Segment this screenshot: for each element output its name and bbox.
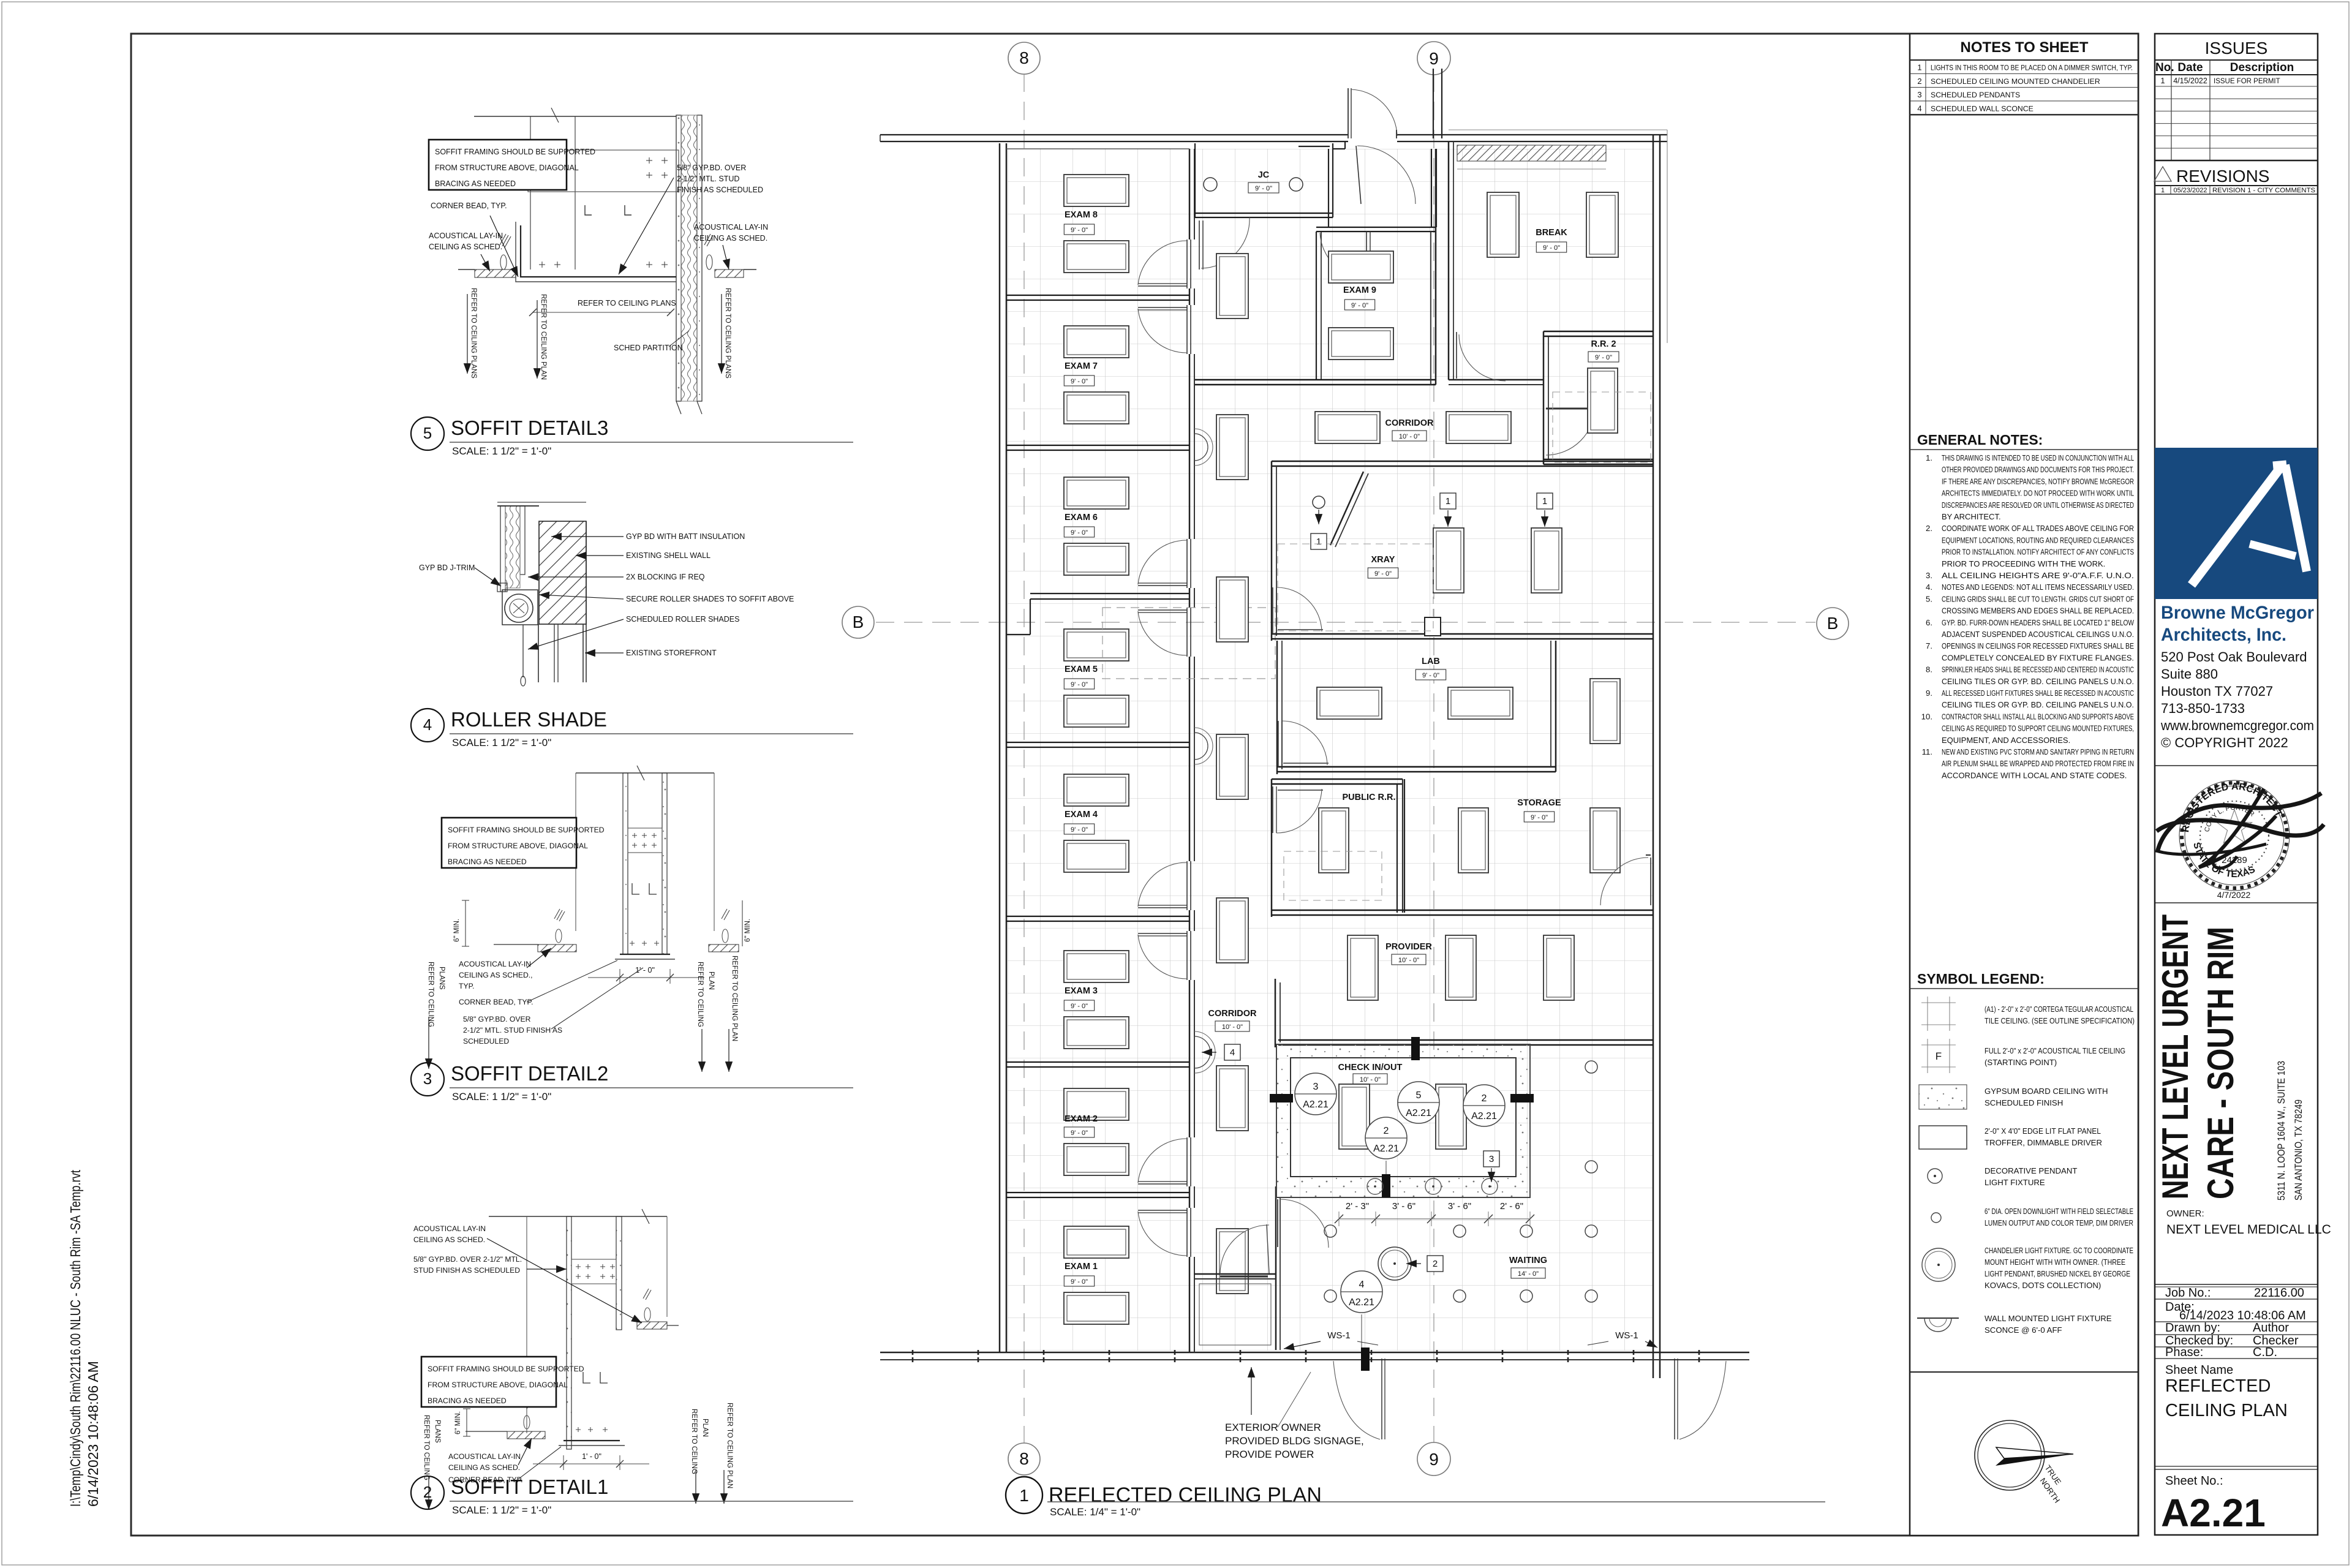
svg-text:CEILING AS REQUIRED TO SUPPORT: CEILING AS REQUIRED TO SUPPORT CEILING M… <box>1942 724 2134 733</box>
svg-text:PROVIDER: PROVIDER <box>1385 942 1432 952</box>
svg-text:3.: 3. <box>1926 571 1932 580</box>
svg-text:9' - 0": 9' - 0" <box>1255 185 1272 192</box>
svg-text:NOTES AND LEGENDS: NOT ALL ITE: NOTES AND LEGENDS: NOT ALL ITEMS NECESSA… <box>1942 582 2134 592</box>
svg-text:ISSUE FOR PERMIT: ISSUE FOR PERMIT <box>2214 78 2280 85</box>
svg-text:(A1) - 2'-0" x 2'-0" CORTEGA T: (A1) - 2'-0" x 2'-0" CORTEGA TEGULAR ACO… <box>1985 1005 2133 1014</box>
svg-text:NEXT LEVEL URGENT: NEXT LEVEL URGENT <box>2155 914 2196 1199</box>
svg-text:1: 1 <box>1445 496 1450 507</box>
svg-text:05/23/2022: 05/23/2022 <box>2173 187 2207 194</box>
svg-text:PLAN: PLAN <box>701 1419 709 1437</box>
svg-text:ACOUSTICAL LAY-IN: ACOUSTICAL LAY-IN <box>459 960 531 968</box>
svg-text:PRIOR TO INSTALLATION. NOTIFY: PRIOR TO INSTALLATION. NOTIFY ARCHITECT … <box>1942 548 2134 557</box>
svg-text:Architects, Inc.: Architects, Inc. <box>2161 625 2286 645</box>
svg-text:GYP. BD. FURR-DOWN HEADERS SHA: GYP. BD. FURR-DOWN HEADERS SHALL BE LOCA… <box>1942 618 2135 627</box>
svg-text:10' - 0": 10' - 0" <box>1360 1076 1381 1084</box>
svg-text:A2.21: A2.21 <box>1303 1099 1329 1110</box>
svg-text:9' - 0": 9' - 0" <box>1071 1278 1088 1286</box>
svg-text:Description: Description <box>2230 61 2294 74</box>
svg-text:EXAM 5: EXAM 5 <box>1065 665 1098 674</box>
svg-text:9' - 0": 9' - 0" <box>1071 378 1088 385</box>
svg-text:DISCREPANCIES ARE RESOLVED OR: DISCREPANCIES ARE RESOLVED OR UNTIL OTHE… <box>1942 500 2134 510</box>
svg-text:FROM STRUCTURE ABOVE, DIAGONAL: FROM STRUCTURE ABOVE, DIAGONAL <box>428 1381 568 1389</box>
svg-text:GYPSUM BOARD CEILING WITH: GYPSUM BOARD CEILING WITH <box>1985 1087 2108 1096</box>
svg-text:9' - 0": 9' - 0" <box>1531 814 1548 821</box>
svg-text:THIS DRAWING IS INTENDED TO BE: THIS DRAWING IS INTENDED TO BE USED IN C… <box>1942 453 2134 462</box>
svg-text:FROM STRUCTURE ABOVE, DIAGONAL: FROM STRUCTURE ABOVE, DIAGONAL <box>448 842 588 850</box>
svg-text:WS-1: WS-1 <box>1615 1330 1638 1341</box>
svg-text:CORRIDOR: CORRIDOR <box>1385 418 1434 428</box>
svg-text:6/14/2023 10:48:06 AM: 6/14/2023 10:48:06 AM <box>85 1361 101 1507</box>
svg-text:CEILING AS SCHED.: CEILING AS SCHED. <box>413 1235 485 1244</box>
svg-text:8: 8 <box>1019 1449 1029 1468</box>
svg-text:B: B <box>853 612 864 631</box>
svg-text:EXAM 2: EXAM 2 <box>1065 1114 1098 1124</box>
svg-text:REFER TO CEILING: REFER TO CEILING <box>690 1409 698 1474</box>
svg-text:NEXT LEVEL MEDICAL LLC: NEXT LEVEL MEDICAL LLC <box>2166 1223 2331 1237</box>
svg-text:EXISTING STOREFRONT: EXISTING STOREFRONT <box>626 649 717 657</box>
svg-text:9' - 0": 9' - 0" <box>1422 672 1439 679</box>
svg-text:1: 1 <box>1917 63 1921 72</box>
svg-text:1' - 0": 1' - 0" <box>635 966 655 974</box>
svg-text:EQUIPMENT, AND ACCESSORIES.: EQUIPMENT, AND ACCESSORIES. <box>1942 736 2070 745</box>
svg-text:SOFFIT FRAMING SHOULD BE SUPPO: SOFFIT FRAMING SHOULD BE SUPPORTED <box>435 148 595 156</box>
svg-text:XRAY: XRAY <box>1371 555 1395 565</box>
svg-text:PROVIDED BLDG SIGNAGE,: PROVIDED BLDG SIGNAGE, <box>1225 1435 1364 1447</box>
svg-text:EXAM 1: EXAM 1 <box>1065 1262 1098 1272</box>
svg-text:REVISION 1 - CITY COMMENTS: REVISION 1 - CITY COMMENTS <box>2212 187 2315 194</box>
svg-text:2' - 3": 2' - 3" <box>1346 1201 1369 1212</box>
svg-text:SOFFIT FRAMING SHOULD BE SUPPO: SOFFIT FRAMING SHOULD BE SUPPORTED <box>448 826 605 834</box>
svg-text:2: 2 <box>1482 1093 1487 1104</box>
svg-text:R.R. 2: R.R. 2 <box>1591 339 1616 349</box>
svg-text:2.: 2. <box>1926 524 1932 533</box>
svg-text:SOFFIT DETAIL2: SOFFIT DETAIL2 <box>451 1062 608 1085</box>
svg-text:9' - 0": 9' - 0" <box>1351 302 1368 309</box>
svg-text:REFER TO CEILING PLAN: REFER TO CEILING PLAN <box>726 1403 733 1488</box>
svg-text:6" MIN.: 6" MIN. <box>454 1411 462 1434</box>
svg-text:4/15/2022: 4/15/2022 <box>2173 77 2207 85</box>
svg-text:IF THERE ARE ANY DISCREPANCIES: IF THERE ARE ANY DISCREPANCIES, NOTIFY B… <box>1942 477 2134 486</box>
svg-text:AIR PLENUM SHALL BE WRAPPED AN: AIR PLENUM SHALL BE WRAPPED AND PROTECTE… <box>1942 759 2134 768</box>
svg-text:MOUNT HEIGHT WITH WITH OWNER.: MOUNT HEIGHT WITH WITH OWNER. (THREE <box>1985 1257 2125 1267</box>
svg-text:PUBLIC R.R.: PUBLIC R.R. <box>1343 793 1396 802</box>
svg-text:WALL MOUNTED LIGHT FIXTURE: WALL MOUNTED LIGHT FIXTURE <box>1985 1314 2112 1323</box>
svg-text:SCHED PARTITION: SCHED PARTITION <box>614 344 683 352</box>
svg-text:Job No.:: Job No.: <box>2165 1286 2211 1300</box>
svg-text:(STARTING POINT): (STARTING POINT) <box>1985 1058 2057 1067</box>
svg-text:Sheet Name: Sheet Name <box>2165 1363 2233 1377</box>
svg-text:CORNER BEAD, TYP.: CORNER BEAD, TYP. <box>459 998 533 1006</box>
svg-text:GENERAL NOTES:: GENERAL NOTES: <box>1917 432 2043 448</box>
svg-text:9' - 0": 9' - 0" <box>1071 681 1088 688</box>
svg-text:ALL RECESSED LIGHT FIXTURES SH: ALL RECESSED LIGHT FIXTURES SHALL BE REC… <box>1942 688 2134 698</box>
svg-text:3' - 6": 3' - 6" <box>1392 1201 1415 1212</box>
svg-text:STORAGE: STORAGE <box>1517 798 1561 808</box>
svg-text:14' - 0": 14' - 0" <box>1518 1270 1539 1278</box>
svg-text:EXAM 8: EXAM 8 <box>1065 210 1098 220</box>
svg-text:ARCHITECTS IMMEDIATELY. DO NOT: ARCHITECTS IMMEDIATELY. DO NOT PROCEED W… <box>1942 489 2134 498</box>
svg-text:TILE CEILING. (SEE OUTLINE SPE: TILE CEILING. (SEE OUTLINE SPECIFICATION… <box>1985 1016 2135 1025</box>
svg-text:SCHEDULED WALL SCONCE: SCHEDULED WALL SCONCE <box>1931 104 2034 113</box>
svg-text:8: 8 <box>1019 48 1029 67</box>
svg-text:COORDINATE WORK OF ALL TRADES: COORDINATE WORK OF ALL TRADES ABOVE CEIL… <box>1942 524 2134 533</box>
svg-text:REFER TO CEILING: REFER TO CEILING <box>696 962 704 1027</box>
svg-text:A2.21: A2.21 <box>1471 1111 1497 1121</box>
svg-text:SCALE: 1 1/2" = 1'-0": SCALE: 1 1/2" = 1'-0" <box>452 445 551 457</box>
svg-text:EXAM 9: EXAM 9 <box>1343 285 1376 295</box>
svg-text:ADJACENT SUSPENDED ACOUSTICAL: ADJACENT SUSPENDED ACOUSTICAL CEILINGS U… <box>1942 630 2134 639</box>
svg-text:4/7/2022: 4/7/2022 <box>2217 890 2251 900</box>
svg-text:2X BLOCKING IF REQ: 2X BLOCKING IF REQ <box>626 573 705 581</box>
svg-text:9' - 0": 9' - 0" <box>1595 354 1612 361</box>
svg-text:REFER TO CEILING PLANS: REFER TO CEILING PLANS <box>724 288 731 379</box>
svg-text:WS-1: WS-1 <box>1327 1330 1351 1341</box>
svg-text:CEILING GRIDS SHALL BE CUT TO: CEILING GRIDS SHALL BE CUT TO LENGTH. GR… <box>1942 594 2134 603</box>
svg-text:NEW AND EXISTING PVC STORM AND: NEW AND EXISTING PVC STORM AND SANITARY … <box>1942 747 2134 756</box>
svg-text:OTHER PROVIDED DRAWINGS AND DO: OTHER PROVIDED DRAWINGS AND DOCUMENTS FO… <box>1942 465 2134 474</box>
svg-text:LIGHTS IN THIS ROOM TO BE PLAC: LIGHTS IN THIS ROOM TO BE PLACED ON A DI… <box>1931 64 2133 72</box>
svg-text:REFLECTED: REFLECTED <box>2165 1376 2271 1396</box>
svg-text:LIGHT PENDANT, BRUSHED NICKEL: LIGHT PENDANT, BRUSHED NICKEL BY GEORGE <box>1985 1269 2130 1278</box>
svg-text:A2.21: A2.21 <box>2161 1491 2266 1535</box>
svg-text:5/8" GYP.BD. OVER 2-1/2" MTL.: 5/8" GYP.BD. OVER 2-1/2" MTL. <box>413 1255 522 1264</box>
svg-text:5/8" GYP.BD. OVER: 5/8" GYP.BD. OVER <box>677 164 746 172</box>
svg-text:NOTES TO SHEET: NOTES TO SHEET <box>1961 39 2089 56</box>
svg-text:OWNER:: OWNER: <box>2166 1208 2204 1219</box>
svg-text:1: 1 <box>1316 537 1321 547</box>
svg-text:SCALE: 1 1/2" = 1'-0": SCALE: 1 1/2" = 1'-0" <box>452 1091 551 1102</box>
svg-text:REFER TO CEILING: REFER TO CEILING <box>423 1415 430 1480</box>
svg-text:F: F <box>1936 1050 1942 1062</box>
svg-text:9' - 0": 9' - 0" <box>1071 826 1088 834</box>
svg-text:1.: 1. <box>1926 453 1932 462</box>
svg-text:9' - 0": 9' - 0" <box>1543 244 1560 252</box>
svg-text:9' - 0": 9' - 0" <box>1071 227 1088 234</box>
svg-text:6/14/2023 10:48:06 AM: 6/14/2023 10:48:06 AM <box>2179 1309 2306 1322</box>
svg-text:SOFFIT DETAIL1: SOFFIT DETAIL1 <box>451 1476 608 1498</box>
svg-text:2: 2 <box>1917 77 1921 86</box>
svg-text:EXAM 3: EXAM 3 <box>1065 986 1098 996</box>
svg-text:© COPYRIGHT 2022: © COPYRIGHT 2022 <box>2161 735 2288 750</box>
svg-text:I:\Temp\Cindy\South Rim\22116.: I:\Temp\Cindy\South Rim\22116.00 NLUC - … <box>67 1170 83 1507</box>
svg-text:1' - 0": 1' - 0" <box>582 1452 601 1461</box>
svg-text:CHECK IN/OUT: CHECK IN/OUT <box>1338 1063 1403 1072</box>
svg-text:SCHEDULED: SCHEDULED <box>463 1037 509 1046</box>
svg-text:PLAN: PLAN <box>707 971 715 990</box>
svg-text:PROVIDE POWER: PROVIDE POWER <box>1225 1449 1314 1460</box>
svg-text:SCHEDULED ROLLER SHADES: SCHEDULED ROLLER SHADES <box>626 615 739 624</box>
svg-text:EQUIPMENT LOCATIONS, ROUTING A: EQUIPMENT LOCATIONS, ROUTING AND REQUIRE… <box>1942 535 2134 545</box>
svg-text:10' - 0": 10' - 0" <box>1398 957 1419 964</box>
svg-text:ROLLER SHADE: ROLLER SHADE <box>451 708 607 731</box>
svg-text:22116.00: 22116.00 <box>2254 1286 2304 1300</box>
svg-text:8.: 8. <box>1926 665 1932 674</box>
svg-text:CEILING TILES OR GYP. BD. CEIL: CEILING TILES OR GYP. BD. CEILING PANELS… <box>1942 677 2134 686</box>
svg-text:EXAM 4: EXAM 4 <box>1065 810 1098 820</box>
svg-text:CARE - SOUTH RIM: CARE - SOUTH RIM <box>2200 927 2241 1199</box>
svg-text:BRACING AS NEEDED: BRACING AS NEEDED <box>428 1396 507 1405</box>
svg-text:OPENINGS IN CEILINGS FOR RECES: OPENINGS IN CEILINGS FOR RECESSED FIXTUR… <box>1942 641 2134 650</box>
svg-text:9' - 0": 9' - 0" <box>1374 570 1392 578</box>
svg-text:SAN ANTONIO, TX 78249: SAN ANTONIO, TX 78249 <box>2293 1099 2304 1200</box>
svg-text:REFLECTED CEILING PLAN: REFLECTED CEILING PLAN <box>1049 1483 1322 1507</box>
svg-text:SOFFIT FRAMING SHOULD BE SUPPO: SOFFIT FRAMING SHOULD BE SUPPORTED <box>428 1365 584 1373</box>
svg-text:A2.21: A2.21 <box>1373 1144 1399 1154</box>
svg-text:2: 2 <box>423 1483 432 1501</box>
svg-text:2'-0" X 4'0" EDGE LIT FLAT PAN: 2'-0" X 4'0" EDGE LIT FLAT PANEL <box>1985 1126 2101 1136</box>
svg-text:SCALE: 1 1/2" = 1'-0": SCALE: 1 1/2" = 1'-0" <box>452 1504 551 1516</box>
svg-text:CEILING AS SCHED.: CEILING AS SCHED. <box>429 243 502 251</box>
svg-text:Phase:: Phase: <box>2165 1346 2203 1359</box>
svg-text:CEILING AS SCHED.,: CEILING AS SCHED., <box>459 971 533 979</box>
svg-text:9.: 9. <box>1926 688 1932 698</box>
svg-text:9' - 0": 9' - 0" <box>1071 1129 1088 1137</box>
svg-text:WAITING: WAITING <box>1509 1256 1547 1265</box>
svg-text:CEILING PLAN: CEILING PLAN <box>2165 1401 2288 1420</box>
svg-text:10' - 0": 10' - 0" <box>1222 1023 1243 1031</box>
svg-text:GYP BD WITH BATT INSULATION: GYP BD WITH BATT INSULATION <box>626 532 745 541</box>
svg-text:Author: Author <box>2253 1321 2289 1335</box>
svg-text:A2.21: A2.21 <box>1349 1297 1374 1308</box>
svg-text:JC: JC <box>1258 170 1270 180</box>
svg-text:BRACING AS NEEDED: BRACING AS NEEDED <box>448 858 527 866</box>
svg-text:CORNER BEAD, TYP.: CORNER BEAD, TYP. <box>431 202 507 210</box>
svg-text:BY ARCHITECT.: BY ARCHITECT. <box>1942 512 2001 521</box>
svg-text:3: 3 <box>1917 90 1921 99</box>
svg-text:REFER TO CEILING PLAN: REFER TO CEILING PLAN <box>731 956 738 1041</box>
svg-text:SCALE: 1 1/2" = 1'-0": SCALE: 1 1/2" = 1'-0" <box>452 737 551 748</box>
svg-text:6" DIA. OPEN DOWNLIGHT WITH FI: 6" DIA. OPEN DOWNLIGHT WITH FIELD SELECT… <box>1985 1207 2133 1216</box>
svg-text:LIGHT FIXTURE: LIGHT FIXTURE <box>1985 1178 2045 1187</box>
svg-text:1: 1 <box>1019 1486 1029 1505</box>
svg-text:SCHEDULED PENDANTS: SCHEDULED PENDANTS <box>1931 91 2020 99</box>
svg-text:STUD FINISH AS SCHEDULED: STUD FINISH AS SCHEDULED <box>413 1266 520 1275</box>
svg-text:5/8" GYP.BD. OVER: 5/8" GYP.BD. OVER <box>463 1015 531 1023</box>
svg-text:LUMEN OUTPUT AND COLOR TEMP, D: LUMEN OUTPUT AND COLOR TEMP, DIM DRIVER <box>1985 1218 2133 1227</box>
svg-text:CEILING TILES OR GYP. BD. CEIL: CEILING TILES OR GYP. BD. CEILING PANELS… <box>1942 700 2134 709</box>
svg-text:PRIOR TO PROCEEDING WITH THE W: PRIOR TO PROCEEDING WITH THE WORK. <box>1942 559 2105 568</box>
svg-text:EXAM 6: EXAM 6 <box>1065 513 1098 522</box>
svg-text:COMPLETELY CONCEALED BY FIXTUR: COMPLETELY CONCEALED BY FIXTURE FLANGES. <box>1942 653 2134 662</box>
svg-text:FROM STRUCTURE ABOVE, DIAGONAL: FROM STRUCTURE ABOVE, DIAGONAL <box>435 164 579 172</box>
svg-text:713-850-1733: 713-850-1733 <box>2161 701 2245 716</box>
svg-text:CORRIDOR: CORRIDOR <box>1208 1009 1257 1019</box>
svg-text:3: 3 <box>1313 1082 1319 1092</box>
svg-text:SYMBOL LEGEND:: SYMBOL LEGEND: <box>1917 971 2045 987</box>
svg-text:ACOUSTICAL LAY-IN: ACOUSTICAL LAY-IN <box>429 232 503 240</box>
svg-text:REFER TO CEILING PLAN: REFER TO CEILING PLAN <box>540 294 547 380</box>
svg-text:4: 4 <box>1917 104 1921 113</box>
svg-text:TROFFER, DIMMABLE DRIVER: TROFFER, DIMMABLE DRIVER <box>1985 1138 2102 1147</box>
svg-text:Suite 880: Suite 880 <box>2161 666 2218 682</box>
svg-text:11.: 11. <box>1922 747 1932 756</box>
svg-text:520 Post Oak Boulevard: 520 Post Oak Boulevard <box>2161 649 2307 665</box>
svg-text:9: 9 <box>1429 49 1439 68</box>
svg-text:REFER TO CEILING: REFER TO CEILING <box>427 962 434 1027</box>
svg-text:3' - 6": 3' - 6" <box>1448 1201 1471 1212</box>
svg-text:SCHEDULED FINISH: SCHEDULED FINISH <box>1985 1098 2063 1107</box>
svg-text:4: 4 <box>1359 1280 1365 1290</box>
svg-text:2' - 6": 2' - 6" <box>1500 1201 1523 1212</box>
svg-text:3: 3 <box>423 1069 432 1088</box>
svg-text:3: 3 <box>1489 1154 1494 1164</box>
svg-text:SPRINKLER HEADS SHALL BE RECES: SPRINKLER HEADS SHALL BE RECESSED AND CE… <box>1942 665 2134 674</box>
svg-text:REFER TO CEILING PLANS: REFER TO CEILING PLANS <box>470 288 477 379</box>
svg-text:BREAK: BREAK <box>1536 228 1567 238</box>
svg-text:SOFFIT DETAIL3: SOFFIT DETAIL3 <box>451 417 608 439</box>
svg-text:SCALE: 1/4" = 1'-0": SCALE: 1/4" = 1'-0" <box>1050 1506 1140 1518</box>
svg-text:6.: 6. <box>1926 618 1932 627</box>
svg-text:4: 4 <box>1230 1047 1235 1058</box>
svg-text:SECURE ROLLER SHADES TO SOFFIT: SECURE ROLLER SHADES TO SOFFIT ABOVE <box>626 595 794 603</box>
svg-text:CEILING AS SCHED.: CEILING AS SCHED. <box>694 234 767 243</box>
svg-text:GYP BD J-TRIM: GYP BD J-TRIM <box>419 563 475 572</box>
svg-text:C.D.: C.D. <box>2253 1346 2277 1359</box>
svg-text:4.: 4. <box>1926 582 1932 592</box>
svg-text:1: 1 <box>1542 496 1547 507</box>
svg-text:B: B <box>1827 614 1839 633</box>
svg-text:DECORATIVE PENDANT: DECORATIVE PENDANT <box>1985 1166 2077 1175</box>
svg-text:ACCORDANCE WITH LOCAL AND STAT: ACCORDANCE WITH LOCAL AND STATE CODES. <box>1942 771 2127 780</box>
svg-text:www.brownemcgregor.com: www.brownemcgregor.com <box>2160 718 2314 733</box>
svg-text:EXISTING SHELL WALL: EXISTING SHELL WALL <box>626 551 710 560</box>
svg-text:Date: Date <box>2177 61 2203 74</box>
svg-text:PLANS: PLANS <box>434 1420 441 1443</box>
svg-text:5311 N. LOOP 1604 W., SUITE 10: 5311 N. LOOP 1604 W., SUITE 103 <box>2276 1061 2287 1200</box>
svg-text:1: 1 <box>2160 76 2165 85</box>
svg-text:9: 9 <box>1429 1450 1439 1469</box>
svg-text:ACOUSTICAL LAY-IN: ACOUSTICAL LAY-IN <box>448 1452 521 1461</box>
svg-text:ISSUES: ISSUES <box>2205 39 2268 58</box>
svg-text:6" MIN.: 6" MIN. <box>744 919 752 942</box>
svg-text:CROSSING MEMBERS AND EDGES SHA: CROSSING MEMBERS AND EDGES SHALL BE REPL… <box>1942 606 2134 616</box>
svg-text:Sheet No.:: Sheet No.: <box>2165 1474 2223 1488</box>
svg-text:FULL 2'-0" x 2'-0" ACOUSTICAL: FULL 2'-0" x 2'-0" ACOUSTICAL TILE CEILI… <box>1985 1046 2125 1055</box>
svg-text:PLANS: PLANS <box>438 967 445 990</box>
svg-text:2: 2 <box>1384 1126 1389 1136</box>
svg-text:5.: 5. <box>1926 594 1932 603</box>
svg-text:2: 2 <box>1433 1259 1438 1269</box>
svg-text:EXAM 7: EXAM 7 <box>1065 361 1098 371</box>
svg-text:CEILING AS SCHED.: CEILING AS SCHED. <box>448 1463 520 1472</box>
svg-text:SCHEDULED CEILING MOUNTED CHAN: SCHEDULED CEILING MOUNTED CHANDELIER <box>1931 77 2100 86</box>
svg-text:ACOUSTICAL LAY-IN: ACOUSTICAL LAY-IN <box>694 223 768 232</box>
svg-text:EXTERIOR OWNER: EXTERIOR OWNER <box>1225 1422 1321 1433</box>
svg-text:REVISIONS: REVISIONS <box>2176 167 2269 186</box>
svg-text:9' - 0": 9' - 0" <box>1071 1003 1088 1010</box>
svg-text:10' - 0": 10' - 0" <box>1399 433 1420 440</box>
svg-text:1: 1 <box>2161 187 2165 194</box>
svg-text:CONTRACTOR SHALL INSTALL ALL B: CONTRACTOR SHALL INSTALL ALL BLOCKING AN… <box>1942 712 2134 721</box>
svg-text:10.: 10. <box>1921 712 1932 721</box>
svg-text:FINISH AS SCHEDULED: FINISH AS SCHEDULED <box>677 186 763 194</box>
svg-text:5: 5 <box>423 424 432 442</box>
svg-text:9' - 0": 9' - 0" <box>1071 529 1088 537</box>
svg-text:LAB: LAB <box>1422 657 1440 666</box>
svg-text:KOVACS, DOTS COLLECTION): KOVACS, DOTS COLLECTION) <box>1985 1281 2101 1290</box>
svg-text:ACOUSTICAL LAY-IN: ACOUSTICAL LAY-IN <box>413 1224 486 1233</box>
svg-text:ALL CEILING HEIGHTS ARE 9'-0"A: ALL CEILING HEIGHTS ARE 9'-0"A.F.F. U.N.… <box>1942 571 2134 580</box>
svg-text:BRACING AS NEEDED: BRACING AS NEEDED <box>435 179 516 188</box>
svg-text:REFER TO CEILING PLANS: REFER TO CEILING PLANS <box>578 299 676 307</box>
svg-text:Browne McGregor: Browne McGregor <box>2161 603 2314 623</box>
svg-text:SCONCE @ 6'-0 AFF: SCONCE @ 6'-0 AFF <box>1985 1325 2062 1335</box>
svg-text:TYP.: TYP. <box>459 982 475 990</box>
svg-text:CHANDELIER LIGHT FIXTURE. GC: CHANDELIER LIGHT FIXTURE. GC TO COORDINA… <box>1985 1246 2133 1255</box>
svg-text:6" MIN.: 6" MIN. <box>453 919 461 942</box>
svg-text:Houston TX 77027: Houston TX 77027 <box>2161 684 2273 699</box>
svg-text:2-1/2" MTL. STUD: 2-1/2" MTL. STUD <box>677 175 739 183</box>
svg-text:A2.21: A2.21 <box>1406 1108 1431 1118</box>
svg-text:Drawn by:: Drawn by: <box>2165 1321 2220 1335</box>
svg-text:5: 5 <box>1416 1090 1422 1101</box>
svg-text:2-1/2" MTL. STUD FINISH AS: 2-1/2" MTL. STUD FINISH AS <box>463 1026 562 1035</box>
svg-text:7.: 7. <box>1926 641 1932 650</box>
svg-text:4: 4 <box>423 715 432 734</box>
